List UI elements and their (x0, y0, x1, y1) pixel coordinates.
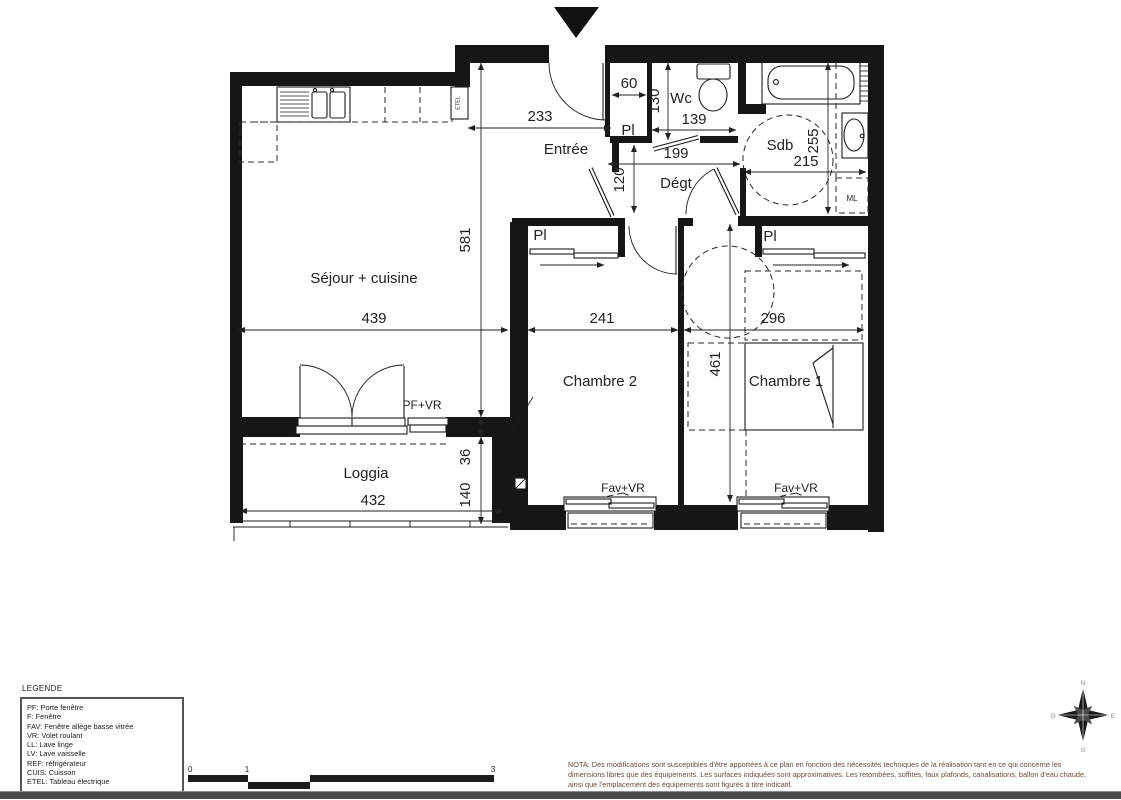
dim-entree-width: 233 (527, 108, 552, 125)
etel-label: ETEL (456, 96, 462, 110)
closet-chambre1 (763, 249, 865, 265)
pf-vr-label: PF+VR (402, 398, 441, 412)
nota-line-3: ainsi que l'emplacement des équipements … (568, 780, 1108, 790)
walls (230, 45, 884, 532)
room-chambre2: Chambre 2 (563, 373, 637, 390)
dim-wall-gap: 36 (457, 449, 474, 466)
compass-n: N (1081, 680, 1086, 687)
ml-label: ML (846, 194, 858, 203)
bathtub (762, 62, 869, 104)
legend-item-pf: PF: Porte fenêtre (27, 703, 177, 712)
legend-item-lv: LV: Lave vaisselle (27, 749, 177, 758)
legend-item-ref: REF: réfrigérateur (27, 759, 177, 768)
nota-line-1: NOTA: Des modifications sont susceptible… (568, 760, 1108, 770)
window-chambre1 (737, 493, 829, 528)
chambre2-door-arc (629, 226, 677, 274)
closet-label-chambre2: Pl (533, 227, 546, 244)
dimension-labels: 233 60 130 139 199 120 255 215 581 439 2… (360, 75, 822, 509)
scale-bar: 0 1 3 (188, 765, 496, 789)
dim-pl-width: 60 (621, 75, 638, 92)
room-entree: Entrée (544, 141, 588, 158)
dim-loggia-height: 140 (457, 482, 474, 507)
room-sdb: Sdb (767, 137, 794, 154)
closet-label-chambre1: Pl (763, 228, 776, 245)
dim-chambre2-width: 241 (589, 310, 614, 327)
dim-wc-width: 139 (681, 111, 706, 128)
compass-s: S (1081, 747, 1086, 754)
dim-chambres-height: 461 (707, 351, 724, 376)
entrance-door-arc (549, 63, 605, 120)
legend-item-f: F: Fenêtre (27, 712, 177, 721)
sink-basin (312, 92, 327, 118)
compass-e: E (1111, 713, 1116, 720)
floor-plan-page: ETEL (0, 0, 1121, 800)
washbasin (842, 113, 868, 158)
nota-line-2: dimensions libres que des équipements. L… (568, 770, 1108, 780)
legend-box: PF: Porte fenêtre F: Fenêtre FAV: Fenêtr… (20, 697, 184, 793)
room-chambre1: Chambre 1 (749, 373, 823, 390)
dim-wc-height: 130 (646, 88, 663, 113)
floor-plan-drawing: ETEL (0, 0, 1121, 800)
closet-chambre2 (530, 249, 618, 265)
dim-degt-width: 199 (663, 145, 688, 162)
dim-chambre1-width: 296 (760, 310, 785, 327)
dimension-lines (238, 63, 866, 524)
legend-item-cuis: CUIS: Cuisson (27, 768, 177, 777)
legend-item-ll: LL: Lave linge (27, 740, 177, 749)
dim-sdb-height: 255 (805, 128, 822, 153)
room-wc: Wc (670, 90, 692, 107)
duct-hatch (860, 66, 869, 101)
legend-item-fav: FAV: Fenêtre allège basse vitrée (27, 722, 177, 731)
legend-item-etel: ETEL: Tableau électrique (27, 777, 177, 786)
compass-o: O (1050, 713, 1055, 720)
sejour-window-sill (410, 425, 446, 432)
footer-divider-bar (0, 791, 1121, 799)
scale-3: 3 (491, 765, 496, 774)
kitchen-counter: ETEL (240, 87, 468, 162)
closet-label-entree: Pl (621, 122, 634, 139)
compass-rose: N S E O (1050, 680, 1115, 754)
kitchen-drainboard-hatch (280, 92, 309, 116)
dim-sejour-width: 439 (361, 310, 386, 327)
dim-sdb-width: 215 (793, 153, 818, 170)
faucet (330, 88, 333, 91)
room-degt: Dégt (660, 175, 693, 192)
kitchen-appliances-dashed (240, 87, 452, 162)
room-loggia: Loggia (343, 465, 389, 482)
legend: LEGENDE PF: Porte fenêtre F: Fenêtre FAV… (20, 684, 210, 793)
dim-sejour-height: 581 (457, 227, 474, 252)
scale-1: 1 (245, 765, 250, 774)
sink-basin (330, 92, 345, 118)
fav-vr-label-ch2: Fav+VR (601, 481, 645, 495)
faucet (313, 88, 316, 91)
dim-degt-height: 120 (611, 167, 628, 192)
legend-item-vr: VR: Volet roulant (27, 731, 177, 740)
entrance-arrow-marker (554, 7, 599, 38)
wc-toilet (697, 64, 730, 111)
nota-text: NOTA: Des modifications sont susceptible… (568, 760, 1108, 790)
room-sejour: Séjour + cuisine (310, 270, 417, 287)
dim-loggia-width: 432 (360, 492, 385, 509)
sejour-window (408, 418, 448, 425)
window-chambre2 (564, 493, 656, 528)
fav-vr-label-ch1: Fav+VR (774, 481, 818, 495)
legend-title: LEGENDE (22, 684, 210, 693)
